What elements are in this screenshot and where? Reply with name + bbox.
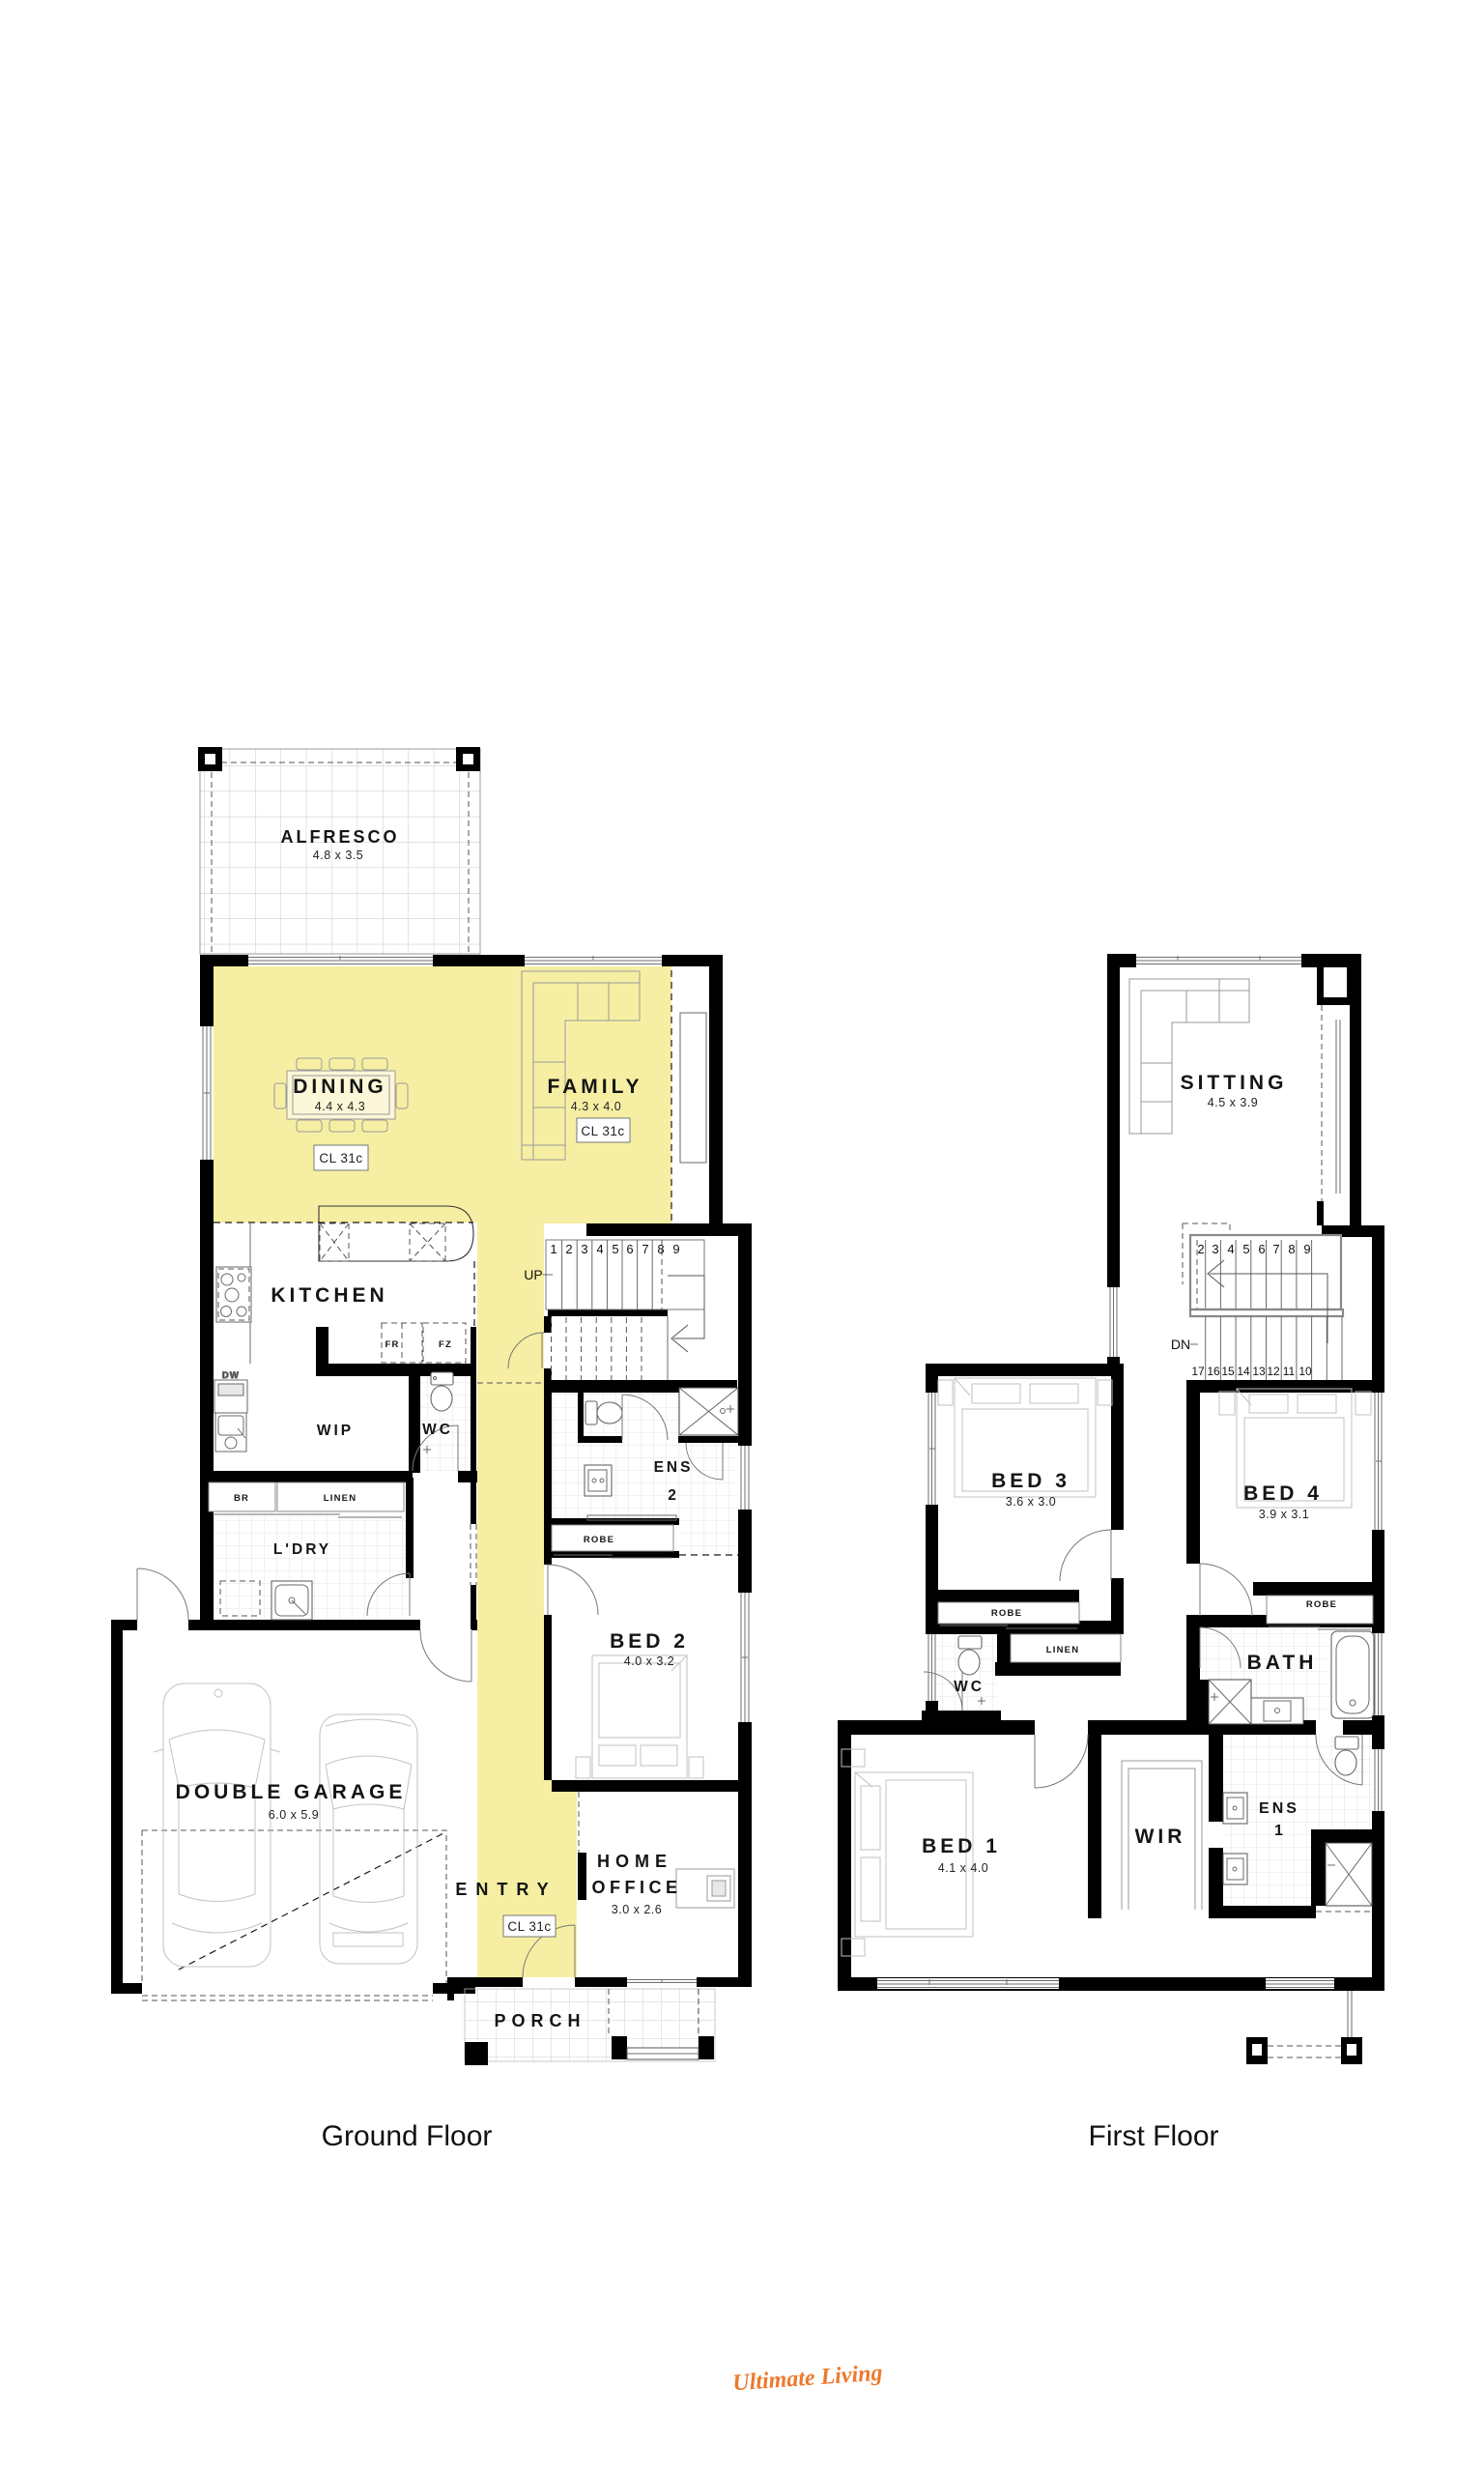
svg-text:WIR: WIR — [1135, 1826, 1186, 1848]
svg-text:FZ: FZ — [439, 1339, 452, 1350]
svg-text:14: 14 — [1237, 1365, 1250, 1378]
svg-text:PORCH: PORCH — [494, 2011, 585, 2030]
svg-text:LINEN: LINEN — [324, 1493, 357, 1504]
svg-text:10: 10 — [1298, 1365, 1312, 1378]
svg-text:9: 9 — [1303, 1242, 1310, 1256]
svg-text:4.3 x 4.0: 4.3 x 4.0 — [571, 1100, 621, 1113]
svg-text:3: 3 — [581, 1242, 587, 1256]
svg-text:9: 9 — [672, 1242, 679, 1256]
svg-text:Ultimate Living: Ultimate Living — [732, 2361, 884, 2397]
svg-text:6: 6 — [626, 1242, 633, 1256]
svg-text:16: 16 — [1207, 1365, 1220, 1378]
svg-text:2: 2 — [1197, 1242, 1204, 1256]
svg-text:1: 1 — [550, 1242, 556, 1256]
svg-text:CL 31c: CL 31c — [319, 1151, 362, 1165]
svg-text:3.6 x 3.0: 3.6 x 3.0 — [1006, 1495, 1056, 1509]
svg-text:12: 12 — [1267, 1365, 1280, 1378]
svg-text:1: 1 — [1274, 1823, 1286, 1839]
svg-text:7: 7 — [1272, 1242, 1279, 1256]
svg-text:WC: WC — [422, 1422, 453, 1438]
svg-text:11: 11 — [1283, 1365, 1296, 1378]
svg-text:ENTRY: ENTRY — [455, 1880, 556, 1899]
svg-text:6: 6 — [1258, 1242, 1265, 1256]
svg-text:FAMILY: FAMILY — [547, 1076, 642, 1098]
svg-text:5: 5 — [1242, 1242, 1249, 1256]
svg-text:17: 17 — [1191, 1365, 1205, 1378]
svg-text:Ground Floor: Ground Floor — [322, 2120, 493, 2152]
svg-text:4: 4 — [596, 1242, 603, 1256]
svg-text:4: 4 — [1227, 1242, 1234, 1256]
svg-text:3.0 x 2.6: 3.0 x 2.6 — [612, 1903, 662, 1916]
svg-text:BR: BR — [234, 1493, 249, 1504]
svg-text:CL 31c: CL 31c — [581, 1124, 624, 1138]
svg-text:3.9 x 3.1: 3.9 x 3.1 — [1259, 1508, 1309, 1521]
svg-text:KITCHEN: KITCHEN — [271, 1284, 387, 1307]
svg-text:WC: WC — [954, 1679, 985, 1695]
svg-text:ENS: ENS — [1259, 1800, 1299, 1817]
svg-text:ALFRESCO: ALFRESCO — [281, 827, 400, 847]
svg-text:15: 15 — [1221, 1365, 1235, 1378]
svg-text:SITTING: SITTING — [1181, 1072, 1288, 1094]
svg-text:8: 8 — [1288, 1242, 1295, 1256]
svg-text:OFFICE: OFFICE — [592, 1878, 682, 1897]
svg-text:4.1 x 4.0: 4.1 x 4.0 — [938, 1861, 988, 1875]
svg-text:8: 8 — [657, 1242, 664, 1256]
svg-text:2: 2 — [565, 1242, 572, 1256]
svg-text:DOUBLE GARAGE: DOUBLE GARAGE — [176, 1781, 407, 1803]
svg-text:BED 2: BED 2 — [610, 1630, 689, 1653]
svg-text:First Floor: First Floor — [1089, 2120, 1219, 2152]
svg-text:5: 5 — [612, 1242, 618, 1256]
svg-text:BED 3: BED 3 — [991, 1470, 1070, 1492]
svg-text:ROBE: ROBE — [584, 1535, 614, 1545]
svg-text:13: 13 — [1252, 1365, 1266, 1378]
svg-text:HOME: HOME — [597, 1852, 672, 1871]
svg-text:2: 2 — [668, 1487, 679, 1504]
svg-text:DW: DW — [222, 1370, 240, 1381]
svg-text:LINEN: LINEN — [1046, 1645, 1080, 1655]
svg-text:4.8 x 3.5: 4.8 x 3.5 — [313, 849, 363, 862]
svg-text:DN: DN — [1171, 1337, 1190, 1352]
svg-text:6.0 x 5.9: 6.0 x 5.9 — [269, 1808, 319, 1822]
svg-text:L'DRY: L'DRY — [273, 1541, 331, 1558]
svg-text:3: 3 — [1212, 1242, 1218, 1256]
svg-text:UP: UP — [524, 1267, 542, 1282]
svg-text:BED 1: BED 1 — [922, 1835, 1001, 1857]
svg-text:BATH: BATH — [1247, 1652, 1318, 1674]
svg-text:7: 7 — [642, 1242, 648, 1256]
svg-text:WIP: WIP — [317, 1423, 354, 1439]
svg-text:CL 31c: CL 31c — [507, 1919, 551, 1934]
svg-text:4.5 x 3.9: 4.5 x 3.9 — [1208, 1096, 1258, 1109]
svg-text:ENS: ENS — [654, 1459, 694, 1476]
svg-text:4.0 x 3.2: 4.0 x 3.2 — [624, 1654, 674, 1668]
svg-text:DINING: DINING — [293, 1076, 387, 1098]
svg-text:ROBE: ROBE — [1306, 1599, 1337, 1610]
svg-text:ROBE: ROBE — [991, 1608, 1022, 1619]
svg-text:BED 4: BED 4 — [1243, 1482, 1323, 1505]
svg-text:FR: FR — [385, 1339, 399, 1350]
svg-text:4.4 x 4.3: 4.4 x 4.3 — [315, 1100, 365, 1113]
